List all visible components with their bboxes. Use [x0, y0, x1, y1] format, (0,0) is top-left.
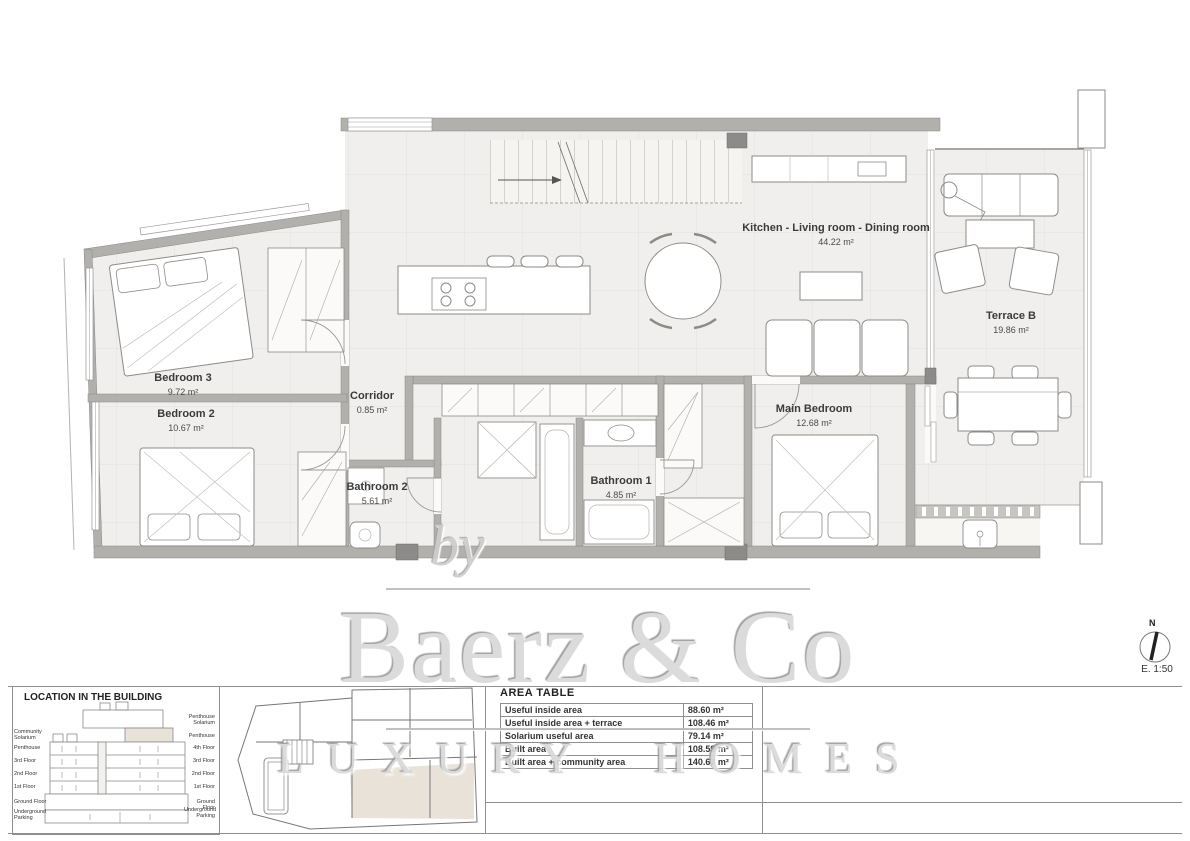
area-row-label: Built area + community area: [501, 756, 684, 769]
floor-label-left-3: 2nd Floor: [14, 771, 49, 777]
sofa-living: [766, 320, 908, 376]
pillar-top-right: [1078, 90, 1105, 148]
floor-label-right-5: 1st Floor: [184, 784, 215, 790]
area-row-label: Useful inside area: [501, 704, 684, 717]
area-row-value: 79.14 m²: [683, 730, 752, 743]
table-row: Solarium useful area 79.14 m²: [501, 730, 753, 743]
floor-label-left-4: 1st Floor: [14, 784, 49, 790]
floor-plan-sheet: Bedroom 3 9.72 m² Bedroom 2 10.67 m² Cor…: [0, 0, 1190, 841]
table-row: Built area + community area 140.67 m²: [501, 756, 753, 769]
terrace-coffee-table: [966, 220, 1034, 248]
bathtub: [540, 424, 574, 540]
table-row: Built area 108.59 m²: [501, 743, 753, 756]
area-row-label: Built area: [501, 743, 684, 756]
floor-label-left-6: Underground Parking: [14, 809, 49, 821]
table-row: Useful inside area 88.60 m²: [501, 704, 753, 717]
area-row-value: 108.46 m²: [683, 717, 752, 730]
compass-icon: [1130, 626, 1182, 666]
divider-table-bottom: [485, 802, 1182, 803]
area-row-label: Solarium useful area: [501, 730, 684, 743]
table-row: Useful inside area + terrace 108.46 m²: [501, 717, 753, 730]
utility-sink: [963, 520, 997, 548]
floor-label-right-2: 4th Floor: [184, 745, 215, 751]
area-table: Useful inside area 88.60 m² Useful insid…: [500, 703, 753, 769]
area-row-value: 88.60 m²: [683, 704, 752, 717]
area-row-value: 108.59 m²: [683, 743, 752, 756]
floor-label-left-0: Community Solarium: [14, 729, 49, 741]
kitchen-counter: [752, 156, 906, 182]
floor-label-right-7: Underground Parking: [184, 807, 215, 819]
divider-table-right: [762, 686, 763, 833]
location-title: LOCATION IN THE BUILDING: [24, 692, 162, 703]
area-row-label: Useful inside area + terrace: [501, 717, 684, 730]
floor-label-left-2: 3rd Floor: [14, 758, 49, 764]
bed-main-bedroom: [772, 435, 878, 546]
floor-label-left-5: Ground Floor: [14, 799, 49, 805]
pillar-bottom-right: [1080, 482, 1102, 544]
floor-label-right-1: Penthouse: [184, 733, 215, 739]
scale-label: E. 1:50: [1141, 664, 1173, 675]
tv-bench: [800, 272, 862, 300]
floor-label-left-1: Penthouse: [14, 745, 49, 751]
floor-label-right-4: 2nd Floor: [184, 771, 215, 777]
key-plan-drawing: [0, 0, 500, 841]
floor-label-right-3: 3rd Floor: [184, 758, 215, 764]
staircase: [490, 140, 742, 203]
area-table-title: AREA TABLE: [500, 687, 575, 699]
area-row-value: 140.67 m²: [683, 756, 752, 769]
floor-label-right-0: Penthouse Solarium: [184, 714, 215, 726]
